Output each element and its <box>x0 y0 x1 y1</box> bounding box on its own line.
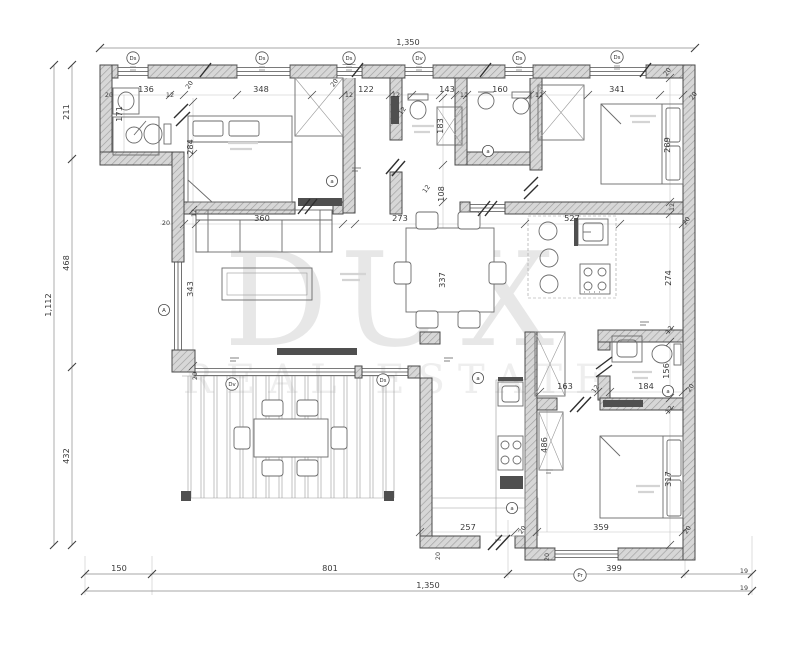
opening-marker-label: Pr <box>577 573 583 579</box>
dimension-label: 12 <box>668 203 676 211</box>
dimension-label: 468 <box>61 255 71 271</box>
dimension-label: 122 <box>358 84 374 94</box>
floor-plan-drawing: DUX REAL ESTATE <box>0 0 800 647</box>
window-glyph <box>172 262 184 350</box>
dimension-label: 12 <box>421 183 432 194</box>
dimension-label: 343 <box>185 281 195 297</box>
toilet-icon <box>144 124 171 144</box>
dimension-label: 150 <box>111 563 127 573</box>
dimension-label: 143 <box>439 84 455 94</box>
opening-marker: a <box>482 145 493 156</box>
dimension-label: 801 <box>322 563 338 573</box>
wardrobe-icon <box>538 85 584 140</box>
dimension-label: 136 <box>138 84 154 94</box>
dimension-label: 12 <box>166 91 174 99</box>
dimension-label: 1,350 <box>416 580 439 590</box>
opening-marker-label: Ds <box>516 56 523 62</box>
toilet-icon <box>652 344 681 365</box>
sliding-door-panel <box>603 400 643 407</box>
bed-icon <box>188 116 292 202</box>
dimension-label: 20 <box>105 91 113 99</box>
opening-marker: Dv <box>226 378 238 390</box>
dimension-label: 12 <box>190 209 198 217</box>
dimension-label: 289 <box>662 137 672 153</box>
dimension-label: 163 <box>557 381 573 391</box>
dimension-label: 19 <box>740 584 748 592</box>
dimension-label: 20 <box>162 219 170 227</box>
dimension-label: 171 <box>114 106 124 122</box>
toilet-icon <box>408 94 428 119</box>
stove-icon <box>580 264 610 294</box>
dimension-label: 432 <box>61 448 71 464</box>
dimension-label: 1,112 <box>43 293 53 316</box>
dimension-label: 317 <box>663 471 673 487</box>
dimension-label: 527 <box>564 213 580 223</box>
opening-marker-label: Ds <box>380 378 387 384</box>
dimension-label: 274 <box>663 270 673 286</box>
dimension-label: 341 <box>609 84 625 94</box>
opening-marker-label: Ds <box>130 56 137 62</box>
dimension-label: 359 <box>593 522 609 532</box>
stove-icon <box>498 436 523 470</box>
dimension-label: 108 <box>436 186 446 202</box>
toilet-icon <box>512 92 531 114</box>
floor-plan-page: DUX REAL ESTATE <box>0 0 800 647</box>
dimension-label: 184 <box>638 381 654 391</box>
opening-marker: A <box>158 304 169 315</box>
dimension-label: 284 <box>185 139 195 155</box>
dimension-label: 211 <box>61 104 71 120</box>
dimension-label: 183 <box>435 118 445 134</box>
dimension-label: 20 <box>543 553 551 561</box>
dimension-label: 12 <box>535 91 543 99</box>
dimension-label: 20 <box>434 552 442 560</box>
dimension-label: 156 <box>661 363 671 379</box>
window-glyph <box>555 548 618 560</box>
dimension-label: 1,350 <box>396 37 419 47</box>
outdoor-dining-table <box>234 400 347 476</box>
opening-marker: a <box>662 385 673 396</box>
dimension-label: 20 <box>191 372 199 380</box>
dimension-label: 12 <box>345 91 353 99</box>
window-glyph <box>470 205 505 212</box>
opening-marker-label: Ds <box>346 56 353 62</box>
opening-marker-label: A <box>162 308 166 314</box>
pergola-post <box>181 491 191 501</box>
opening-marker-label: Dv <box>228 382 236 388</box>
opening-marker: Pr <box>574 569 586 581</box>
dimension-label: 257 <box>460 522 476 532</box>
opening-marker-label: Dv <box>415 56 423 62</box>
dimension-label: 12 <box>460 91 468 99</box>
opening-marker-label: Ds <box>259 56 266 62</box>
dining-table-icon <box>394 212 506 328</box>
dimension-label: 337 <box>437 272 447 288</box>
dimension-label: 399 <box>606 563 622 573</box>
dimension-label: 486 <box>539 437 549 453</box>
opening-marker-label: a <box>476 376 479 382</box>
opening-marker: a <box>326 175 337 186</box>
washbasin-icon <box>478 92 494 109</box>
dimension-label: 20 <box>184 79 195 90</box>
opening-marker: a <box>506 502 517 513</box>
opening-marker: a <box>472 372 483 383</box>
opening-marker-label: a <box>666 389 669 395</box>
pergola-post <box>384 491 394 501</box>
opening-marker: Ds <box>377 374 389 386</box>
window-glyph <box>590 65 646 78</box>
oven-icon <box>500 476 523 489</box>
dimension-label: 20 <box>329 77 340 88</box>
opening-marker-label: Ds <box>614 55 621 61</box>
opening-marker-label: a <box>510 506 513 512</box>
dimension-label: 360 <box>254 213 270 223</box>
dimension-label: 12 <box>392 91 400 99</box>
dimension-label: 19 <box>740 567 748 575</box>
dimension-label: 160 <box>492 84 508 94</box>
dimension-label: 273 <box>392 213 408 223</box>
opening-marker-label: a <box>330 179 333 185</box>
opening-marker-label: a <box>486 149 489 155</box>
radiator-icon <box>277 348 357 355</box>
dimension-label: 348 <box>253 84 269 94</box>
